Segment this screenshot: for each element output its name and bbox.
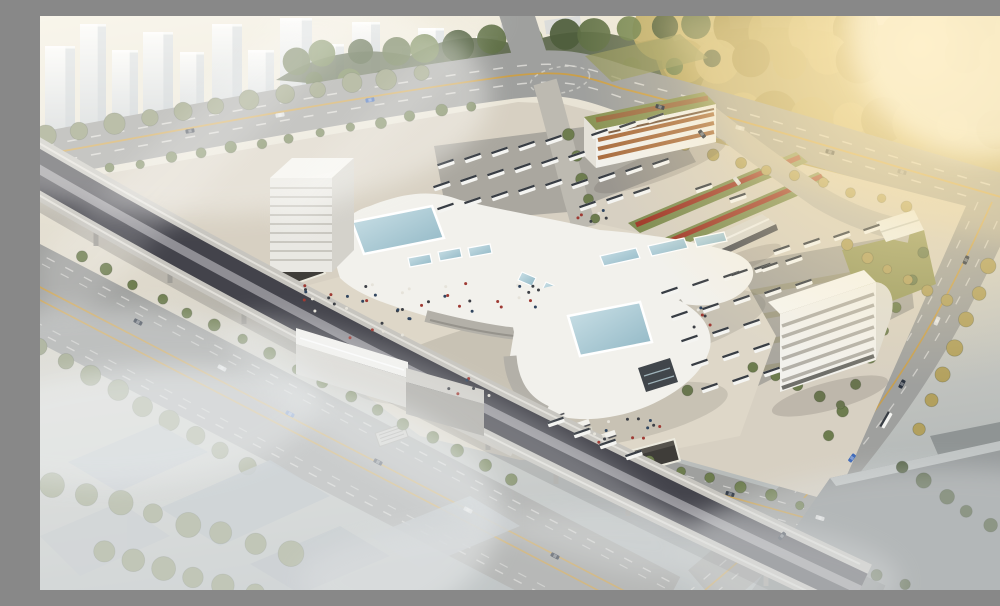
tree [158, 294, 168, 304]
person [313, 309, 316, 312]
person [637, 417, 640, 420]
person [693, 325, 696, 328]
person [597, 212, 600, 215]
person [380, 337, 383, 340]
person [605, 217, 608, 220]
person [649, 419, 652, 422]
person [626, 418, 629, 421]
person [374, 294, 377, 297]
person [709, 324, 712, 327]
person [704, 315, 707, 318]
architectural-rendering [40, 16, 1000, 590]
person [701, 314, 704, 317]
person [401, 308, 404, 311]
person [446, 294, 449, 297]
aerial-scene [40, 16, 1000, 590]
person [427, 300, 430, 303]
person [468, 300, 471, 303]
person [697, 308, 700, 311]
forest-canopy [550, 19, 581, 50]
person [580, 213, 583, 216]
person [593, 432, 596, 435]
person [527, 291, 530, 294]
person [603, 438, 606, 441]
person [364, 285, 367, 288]
person [458, 305, 461, 308]
person [652, 424, 655, 427]
tree [705, 473, 715, 483]
person [658, 425, 661, 428]
person [443, 295, 446, 298]
person [607, 420, 610, 423]
person [576, 216, 579, 219]
person [303, 284, 306, 287]
person [371, 283, 374, 286]
person [401, 334, 404, 337]
person [407, 317, 410, 320]
person [589, 220, 592, 223]
tree [748, 362, 758, 372]
person [631, 436, 634, 439]
person [500, 306, 503, 309]
person [602, 434, 605, 437]
person [311, 297, 314, 300]
person [329, 293, 332, 296]
person [602, 209, 605, 212]
person [518, 296, 521, 299]
person [444, 285, 447, 288]
person [371, 328, 374, 331]
person [605, 429, 608, 432]
person [471, 310, 474, 313]
tree [913, 423, 926, 436]
tree [823, 430, 833, 440]
person [346, 295, 349, 298]
person [420, 304, 423, 307]
person [401, 291, 404, 294]
person [534, 305, 537, 308]
person [408, 287, 411, 290]
person [496, 300, 499, 303]
north-branch-road [514, 16, 537, 78]
tree [925, 394, 938, 407]
person [333, 302, 336, 305]
person [465, 379, 468, 382]
person [365, 299, 368, 302]
person [597, 441, 600, 444]
tree [128, 280, 138, 290]
person [531, 285, 534, 288]
person [464, 282, 467, 285]
tree [562, 129, 574, 141]
person [304, 290, 307, 293]
person [518, 285, 521, 288]
person [642, 437, 645, 440]
person [381, 322, 384, 325]
person [537, 289, 540, 292]
person [382, 330, 385, 333]
person [529, 299, 532, 302]
person [646, 426, 649, 429]
tree [735, 481, 747, 493]
person [303, 298, 306, 301]
person [396, 308, 399, 311]
person [327, 296, 330, 299]
person [361, 300, 364, 303]
person [345, 307, 348, 310]
